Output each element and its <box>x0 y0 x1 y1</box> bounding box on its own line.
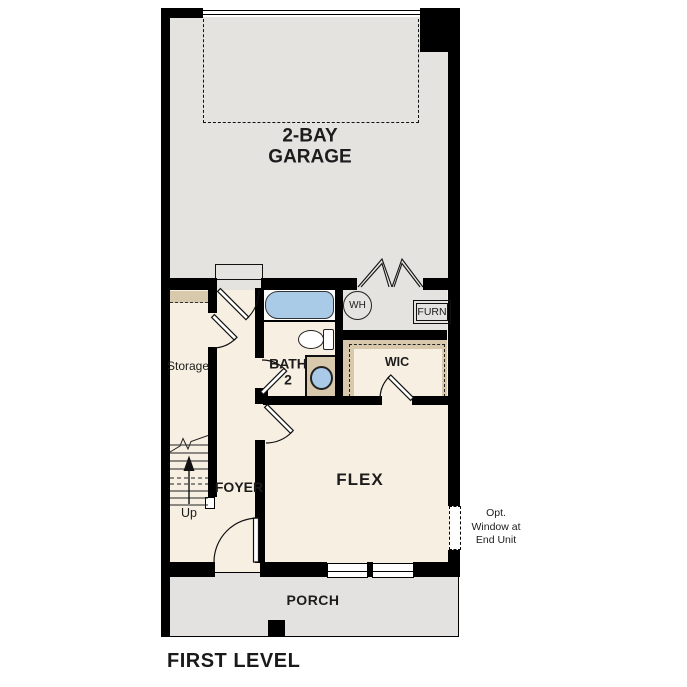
window-mullion <box>373 571 413 572</box>
wic-label: WIC <box>385 355 409 369</box>
flex-label: FLEX <box>336 470 383 490</box>
flex-window-right <box>372 563 414 578</box>
floor-plan: WH FURN <box>0 0 687 687</box>
optional-window-note: Opt. Window at End Unit <box>471 507 520 548</box>
garage-door <box>203 6 420 17</box>
wall-flex-north-a <box>263 396 382 405</box>
wall-mech-south <box>335 330 447 340</box>
optional-window-note-line3: End Unit <box>471 534 520 548</box>
window-mullion <box>328 571 367 572</box>
wall-bath-west <box>255 288 264 358</box>
foyer-label: FOYER <box>215 479 263 495</box>
plan-title: FIRST LEVEL <box>167 650 300 673</box>
furnace: FURN <box>413 300 451 324</box>
water-heater-label: WH <box>349 300 366 311</box>
bath-label-line2: 2 <box>269 372 307 388</box>
wall-outer-left <box>161 8 170 637</box>
porch-post <box>268 620 285 637</box>
wall-storage-east-upper <box>208 288 217 313</box>
optional-window-note-line1: Opt. <box>471 507 520 521</box>
garage-door-line-2 <box>203 14 420 16</box>
garage-setback-dashline <box>203 14 419 123</box>
furnace-inner-border: FURN <box>416 303 448 321</box>
toilet-bowl <box>298 330 324 349</box>
flex-window-left <box>327 563 368 578</box>
bath-sink <box>310 366 333 390</box>
bathtub <box>265 291 334 319</box>
wall-corner-top-right <box>420 8 460 52</box>
garage-entry-step <box>215 264 263 280</box>
wall-south-a <box>161 562 215 577</box>
wall-corner-top-left <box>161 8 203 18</box>
wall-garage-south-c <box>423 278 459 290</box>
stairs-up-label: Up <box>181 506 197 520</box>
wall-flex-north-b <box>412 396 448 405</box>
garage-door-line-1 <box>203 10 420 12</box>
wall-south-d <box>413 562 459 577</box>
furnace-label: FURN <box>417 306 446 318</box>
optional-window <box>449 506 461 550</box>
optional-window-note-line2: Window at <box>471 520 520 534</box>
garage-label-line2: GARAGE <box>268 147 351 168</box>
garage-label-line1: 2-BAY <box>268 127 351 148</box>
toilet-tank <box>323 329 334 350</box>
stair-post <box>205 497 215 509</box>
porch-label: PORCH <box>286 592 339 608</box>
wall-foyer-flex <box>255 440 265 563</box>
wall-south-b <box>260 562 327 577</box>
tub-niche-edge <box>263 320 335 322</box>
storage-shelf <box>170 291 208 303</box>
storage-label: Storage <box>167 359 209 373</box>
bath-label-line1: BATH <box>269 357 307 373</box>
garage-label: 2-BAY GARAGE <box>268 127 351 168</box>
water-heater: WH <box>343 291 372 320</box>
wall-bath-east <box>335 288 343 405</box>
wall-storage-east-lower <box>208 347 217 497</box>
bath-label: BATH 2 <box>269 357 307 388</box>
